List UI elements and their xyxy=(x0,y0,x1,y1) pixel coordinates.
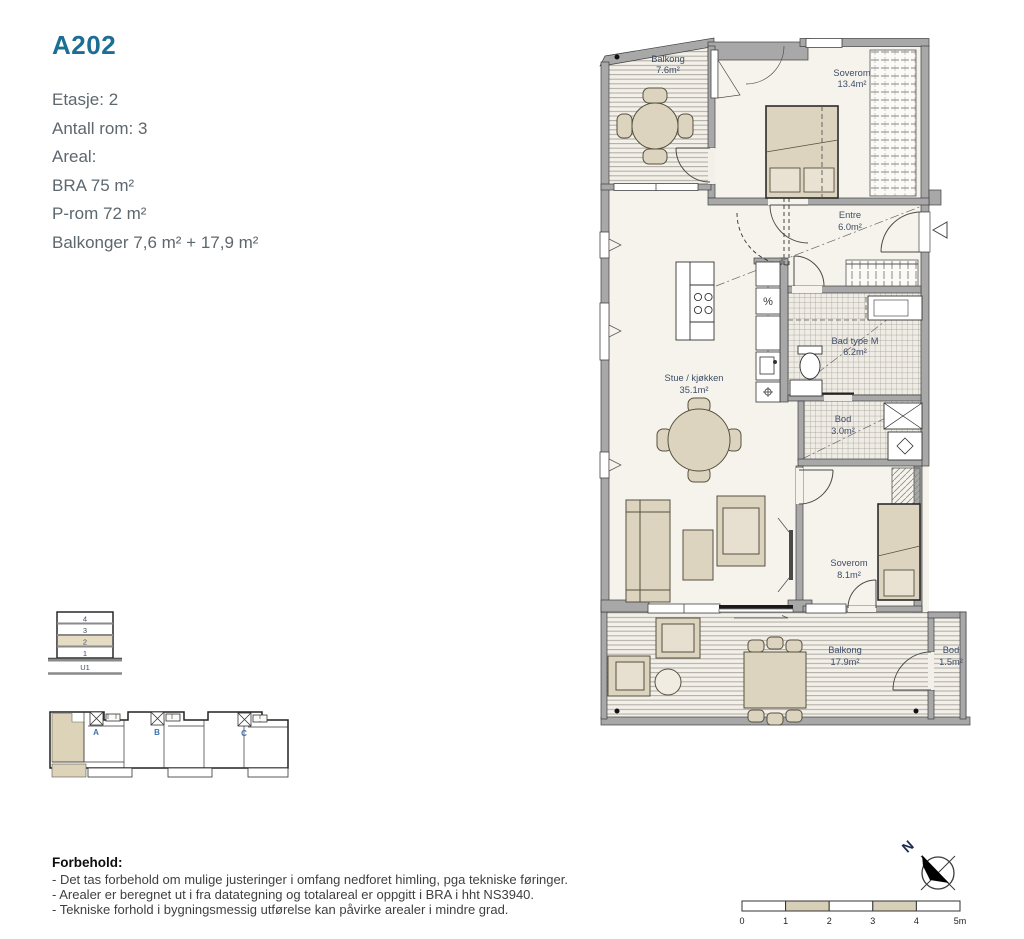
floor-plan: % xyxy=(600,38,970,725)
scale-tick-1: 1 xyxy=(783,916,788,926)
floor-3-label: 3 xyxy=(83,626,87,635)
floor-1-label: 1 xyxy=(83,649,87,658)
scale-tick-3: 3 xyxy=(870,916,875,926)
disclaimer-line-1: - Det tas forbehold om mulige justeringe… xyxy=(52,872,568,887)
room-label-soverom-liten: Soverom xyxy=(830,558,867,568)
highlighted-unit-balcony xyxy=(52,764,86,777)
dishwasher-symbol: % xyxy=(763,296,773,308)
room-label-stue: Stue / kjøkken xyxy=(665,373,724,383)
stair-b-label: B xyxy=(154,728,160,737)
room-label-entre: Entre xyxy=(839,210,861,220)
coat-rack-entre xyxy=(846,260,918,286)
floor-plan-sheet: A202 Etasje: 2 Antall rom: 3 Areal: BRA … xyxy=(0,0,1024,939)
entry-marker xyxy=(933,222,947,238)
wardrobe-small-bedroom xyxy=(892,468,920,506)
bed-main xyxy=(766,106,838,198)
wardrobe-main-bedroom xyxy=(870,50,916,196)
room-label-bod: Bod xyxy=(835,414,852,424)
room-area-soverom-liten: 8.1m² xyxy=(837,570,861,580)
room-label-soverom-stor: Soverom xyxy=(833,68,870,78)
room-label-balkong-sor: Balkong xyxy=(828,645,862,655)
floor-4-label: 4 xyxy=(83,615,87,624)
room-area-stue: 35.1m² xyxy=(680,385,709,395)
room-area-bod: 3.0m² xyxy=(831,426,855,436)
compass: N xyxy=(899,837,955,890)
scale-bar: 0 1 2 3 4 5m xyxy=(739,901,966,926)
room-label-balkong-nord: Balkong xyxy=(651,54,685,64)
room-area-entre: 6.0m² xyxy=(838,222,862,232)
disclaimer-line-2: - Arealer er beregnet ut i fra datategni… xyxy=(52,887,568,902)
north-label: N xyxy=(899,837,917,856)
disclaimer-line-3: - Tekniske forhold i bygningsmessig utfø… xyxy=(52,902,568,917)
kitchen-island xyxy=(676,262,714,340)
bed-small xyxy=(878,504,920,600)
scale-tick-0: 0 xyxy=(739,916,744,926)
scale-tick-5: 5m xyxy=(954,916,967,926)
floor-indicator: 4 3 2 1 U1 xyxy=(48,612,122,674)
room-area-balkong-sor: 17.9m² xyxy=(831,657,860,667)
room-area-balkong-nord: 7.6m² xyxy=(656,65,680,75)
scale-tick-2: 2 xyxy=(827,916,832,926)
floor-2-label: 2 xyxy=(83,638,87,647)
room-area-bad: 6.2m² xyxy=(843,347,867,357)
disclaimer: Forbehold: - Det tas forbehold om mulige… xyxy=(52,855,568,918)
building-key-plan: A B C xyxy=(50,712,288,777)
room-area-bod-balkong: 1.5m² xyxy=(939,657,963,667)
disclaimer-heading: Forbehold: xyxy=(52,855,568,870)
room-label-bad: Bad type M xyxy=(831,336,878,346)
room-area-soverom-stor: 13.4m² xyxy=(838,79,867,89)
scale-tick-4: 4 xyxy=(914,916,919,926)
stair-a-label: A xyxy=(93,728,99,737)
plan-graphics: % xyxy=(0,0,1024,939)
room-label-bod-balkong: Bod xyxy=(943,645,960,655)
floor-u1-label: U1 xyxy=(80,663,90,672)
stair-c-label: C xyxy=(241,729,247,738)
